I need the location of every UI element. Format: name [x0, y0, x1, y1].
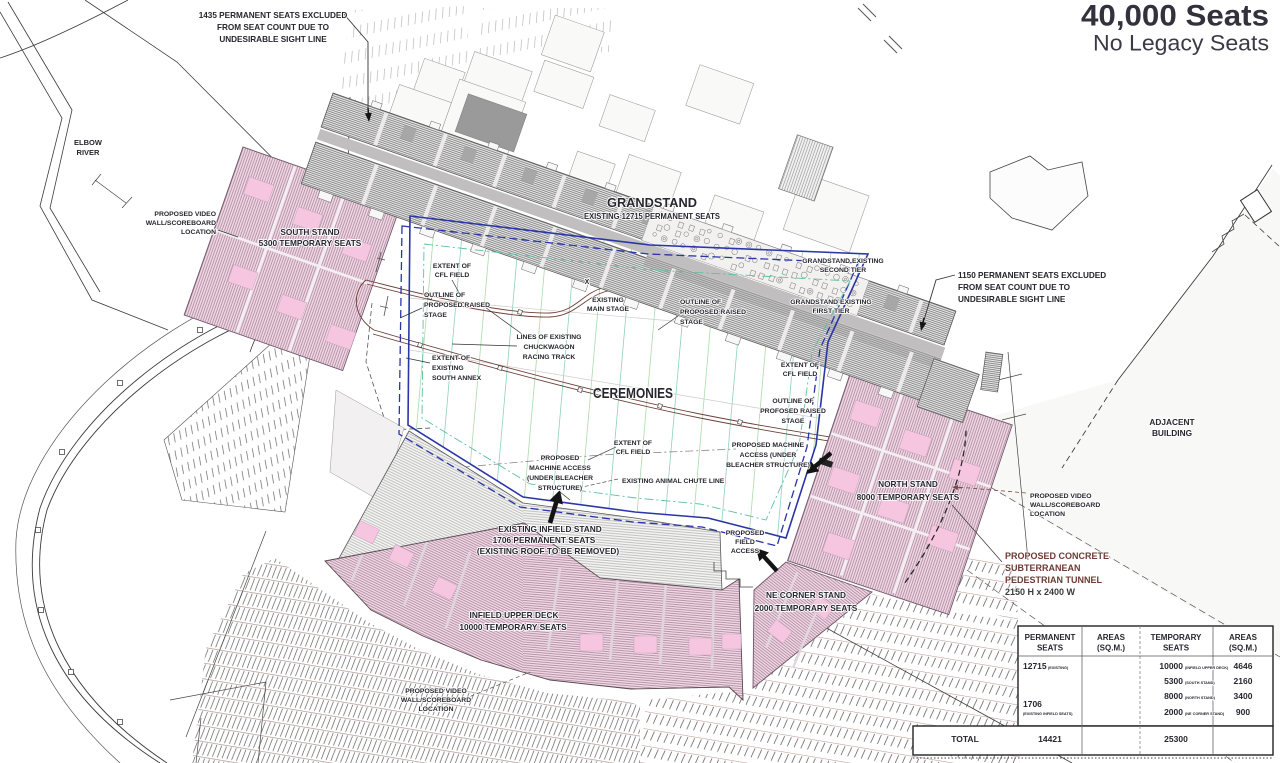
svg-text:2000: 2000 — [1164, 707, 1183, 717]
svg-text:WALL/SCOREBOARD: WALL/SCOREBOARD — [146, 220, 216, 227]
svg-text:CHUCKWAGON: CHUCKWAGON — [524, 344, 575, 351]
svg-text:25300: 25300 — [1164, 734, 1188, 744]
svg-text:RACING TRACK: RACING TRACK — [523, 354, 576, 361]
svg-text:EXISTING ANIMAL CHUTE LINE: EXISTING ANIMAL CHUTE LINE — [622, 478, 725, 485]
svg-text:SOUTH ANNEX: SOUTH ANNEX — [432, 375, 482, 382]
svg-text:4646: 4646 — [1234, 661, 1253, 671]
svg-text:SEATS: SEATS — [1037, 644, 1064, 653]
svg-text:STAGE: STAGE — [424, 312, 447, 319]
svg-text:CEREMONIES: CEREMONIES — [593, 385, 673, 402]
svg-text:LOCATION: LOCATION — [1030, 511, 1065, 518]
svg-text:SOUTH STAND: SOUTH STAND — [280, 227, 339, 237]
svg-text:STRUCTURE): STRUCTURE) — [538, 485, 582, 492]
svg-text:(EXISTING ROOF TO BE REMOVED): (EXISTING ROOF TO BE REMOVED) — [477, 546, 620, 556]
svg-text:8000: 8000 — [1164, 691, 1183, 701]
svg-text:MAIN STAGE: MAIN STAGE — [587, 306, 630, 313]
svg-text:2150 H x 2400 W: 2150 H x 2400 W — [1005, 587, 1076, 597]
svg-text:8000 TEMPORARY SEATS: 8000 TEMPORARY SEATS — [857, 492, 960, 502]
svg-text:AREAS: AREAS — [1229, 633, 1258, 642]
svg-text:PROPOSED VIDEO: PROPOSED VIDEO — [1030, 493, 1092, 500]
svg-text:(UNDER BLEACHER: (UNDER BLEACHER — [527, 475, 593, 482]
svg-text:2160: 2160 — [1234, 676, 1253, 686]
svg-text:CFL FIELD: CFL FIELD — [435, 272, 470, 279]
svg-text:UNDESIRABLE SIGHT LINE: UNDESIRABLE SIGHT LINE — [219, 35, 327, 44]
svg-text:RIVER: RIVER — [77, 148, 101, 157]
svg-text:UNDESIRABLE SIGHT LINE: UNDESIRABLE SIGHT LINE — [958, 295, 1066, 304]
svg-text:EXISTING 12715 PERMANENT SEATS: EXISTING 12715 PERMANENT SEATS — [584, 212, 720, 221]
svg-text:EXISTING INFIELD STAND: EXISTING INFIELD STAND — [498, 524, 602, 534]
svg-text:1706 PERMANENT SEATS: 1706 PERMANENT SEATS — [493, 535, 596, 545]
svg-text:(SQ.M.): (SQ.M.) — [1229, 644, 1257, 653]
svg-text:(SOUTH STAND): (SOUTH STAND) — [1185, 681, 1215, 685]
svg-text:PROPOSED VIDEO: PROPOSED VIDEO — [405, 688, 467, 695]
svg-text:10000 TEMPORARY SEATS: 10000 TEMPORARY SEATS — [459, 622, 567, 632]
svg-text:EXTENT OF: EXTENT OF — [781, 362, 819, 369]
svg-text:CFL FIELD: CFL FIELD — [616, 449, 651, 456]
svg-text:FIRST TIER: FIRST TIER — [812, 308, 849, 315]
svg-text:FIELD: FIELD — [735, 539, 755, 546]
svg-text:14421: 14421 — [1038, 734, 1062, 744]
svg-text:(INFIELD UPPER DECK): (INFIELD UPPER DECK) — [1185, 666, 1229, 670]
svg-text:OUTLINE OF: OUTLINE OF — [772, 398, 813, 405]
svg-text:5300 TEMPORARY SEATS: 5300 TEMPORARY SEATS — [259, 238, 362, 248]
svg-text:STAGE: STAGE — [782, 418, 805, 425]
svg-text:EXTENT OF: EXTENT OF — [433, 263, 471, 270]
svg-text:(EXISTING INFIELD SEATS): (EXISTING INFIELD SEATS) — [1023, 712, 1073, 716]
svg-text:PROPOSED RAISED: PROPOSED RAISED — [424, 302, 490, 309]
svg-text:PROPOSED VIDEO: PROPOSED VIDEO — [154, 211, 216, 218]
svg-text:BLEACHER STRUCTURE): BLEACHER STRUCTURE) — [726, 462, 810, 469]
svg-text:MACHINE ACCESS: MACHINE ACCESS — [529, 465, 591, 472]
svg-text:SUBTERRANEAN: SUBTERRANEAN — [1005, 563, 1081, 573]
svg-text:NORTH STAND: NORTH STAND — [878, 479, 938, 489]
svg-text:ADJACENT: ADJACENT — [1149, 417, 1194, 427]
svg-text:(NORTH STAND): (NORTH STAND) — [1185, 696, 1216, 700]
svg-text:OUTLINE OF: OUTLINE OF — [680, 299, 721, 306]
svg-text:TOTAL: TOTAL — [951, 734, 979, 744]
svg-text:PROPOSED MACHINE: PROPOSED MACHINE — [732, 442, 805, 449]
svg-text:(NE CORNER STAND): (NE CORNER STAND) — [1185, 712, 1225, 716]
svg-text:EXTENT OF: EXTENT OF — [432, 355, 470, 362]
svg-text:No Legacy Seats: No Legacy Seats — [1093, 31, 1269, 56]
svg-text:EXTENT OF: EXTENT OF — [614, 440, 652, 447]
svg-text:PROPOSED CONCRETE: PROPOSED CONCRETE — [1005, 551, 1109, 561]
svg-text:TEMPORARY: TEMPORARY — [1151, 633, 1202, 642]
svg-text:(EXISTING): (EXISTING) — [1048, 666, 1069, 670]
svg-text:SECOND TIER: SECOND TIER — [820, 267, 867, 274]
svg-text:1706: 1706 — [1023, 699, 1042, 709]
svg-text:AREAS: AREAS — [1097, 633, 1126, 642]
svg-text:3400: 3400 — [1234, 691, 1253, 701]
svg-text:12715: 12715 — [1023, 661, 1047, 671]
svg-text:LOCATION: LOCATION — [181, 229, 216, 236]
svg-text:PROFOSED RAISED: PROFOSED RAISED — [760, 408, 826, 415]
svg-text:ELBOW: ELBOW — [74, 138, 103, 147]
svg-text:LOCATION: LOCATION — [419, 706, 454, 713]
svg-text:5300: 5300 — [1164, 676, 1183, 686]
svg-text:PROPOSED RAISED: PROPOSED RAISED — [680, 309, 746, 316]
svg-text:SEATS: SEATS — [1163, 644, 1190, 653]
svg-text:LINES OF EXISTING: LINES OF EXISTING — [517, 334, 582, 341]
svg-text:EXISTING: EXISTING — [592, 297, 624, 304]
svg-text:10000: 10000 — [1159, 661, 1183, 671]
svg-text:EXISTING: EXISTING — [432, 365, 464, 372]
svg-text:900: 900 — [1236, 707, 1250, 717]
svg-text:1435 PERMANENT SEATS EXCLUDED: 1435 PERMANENT SEATS EXCLUDED — [199, 11, 348, 20]
svg-text:FROM SEAT COUNT DUE TO: FROM SEAT COUNT DUE TO — [217, 23, 330, 32]
svg-text:PROPOSED: PROPOSED — [726, 530, 765, 537]
svg-text:PEDESTRIAN TUNNEL: PEDESTRIAN TUNNEL — [1005, 575, 1103, 585]
svg-text:STAGE: STAGE — [680, 319, 703, 326]
svg-text:(SQ.M.): (SQ.M.) — [1097, 644, 1125, 653]
svg-text:FROM SEAT COUNT DUE TO: FROM SEAT COUNT DUE TO — [958, 283, 1071, 292]
svg-text:WALL/SCOREBOARD: WALL/SCOREBOARD — [401, 697, 471, 704]
svg-text:PERMANENT: PERMANENT — [1025, 633, 1076, 642]
svg-text:INFIELD UPPER DECK: INFIELD UPPER DECK — [470, 610, 559, 620]
svg-text:BUILDING: BUILDING — [1152, 428, 1192, 438]
svg-text:X: X — [585, 279, 590, 286]
svg-text:WALL/SCOREBOARD: WALL/SCOREBOARD — [1030, 502, 1100, 509]
svg-text:ACCESS (UNDER: ACCESS (UNDER — [740, 452, 797, 459]
svg-text:CFL FIELD: CFL FIELD — [783, 371, 818, 378]
svg-text:1150 PERMANENT SEATS EXCLUDED: 1150 PERMANENT SEATS EXCLUDED — [958, 271, 1106, 280]
svg-text:GRANDSTAND: GRANDSTAND — [607, 195, 697, 210]
svg-text:ACCESS: ACCESS — [731, 548, 760, 555]
svg-text:OUTLINE OF: OUTLINE OF — [424, 292, 465, 299]
svg-text:40,000 Seats: 40,000 Seats — [1081, 0, 1269, 33]
svg-text:GRANDSTAND EXISTING: GRANDSTAND EXISTING — [790, 299, 871, 306]
svg-text:PROPOSED: PROPOSED — [541, 455, 580, 462]
svg-text:GRANDSTAND EXISTING: GRANDSTAND EXISTING — [802, 258, 883, 265]
svg-text:NE CORNER STAND: NE CORNER STAND — [766, 590, 846, 600]
svg-text:2000 TEMPORARY SEATS: 2000 TEMPORARY SEATS — [755, 603, 858, 613]
